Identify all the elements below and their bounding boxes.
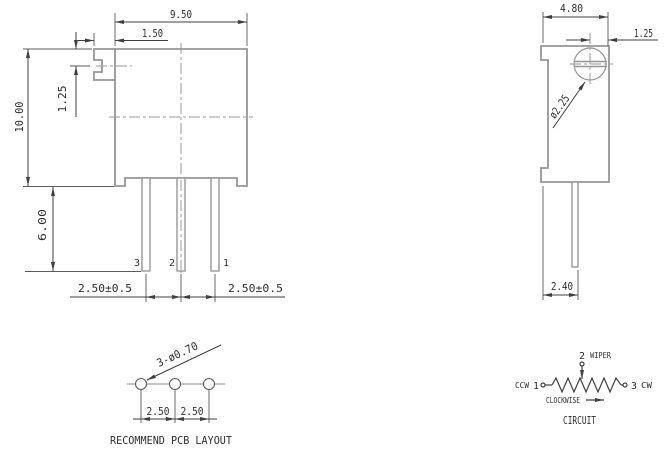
circuit-pin3-number: 3 <box>631 381 637 392</box>
dim-screw-tab-label: 1.50 <box>142 27 163 40</box>
circuit-wiper-label: WIPER <box>590 351 611 360</box>
pcb-layout: 3-ø0.70 2.50 2.50 RECOMMEND PCB LAYOUT <box>110 339 232 447</box>
dim-pin-offset-label: 2.40 <box>551 280 573 293</box>
front-pin-3 <box>142 178 150 271</box>
dim-pin-length-label: 6.00 <box>36 209 49 241</box>
pcb-hole-2 <box>170 379 181 390</box>
dim-pin-pitch-left-label: 2.50±0.5 <box>78 282 132 295</box>
dim-body-height-label: 10.00 <box>13 102 26 133</box>
ccw-terminal-dot <box>541 383 545 387</box>
pcb-layout-title: RECOMMEND PCB LAYOUT <box>110 434 232 447</box>
pcb-hole-3 <box>136 379 147 390</box>
pin-3-label: 3 <box>134 258 140 269</box>
front-pin-1 <box>211 178 219 271</box>
circuit-pin1-number: 1 <box>533 381 539 392</box>
dim-screw-inset-label: 1.25 <box>634 27 653 40</box>
technical-drawing-page: 3 2 1 9.50 1.50 10.00 1.25 6.00 <box>0 0 672 450</box>
circuit-wiper-number: 2 <box>579 351 585 362</box>
clockwise-label: CLOCKWISE <box>546 396 580 405</box>
dim-screw-diameter-label: ø2.25 <box>547 92 573 121</box>
circuit-cw-label: CW <box>641 381 653 390</box>
cw-terminal-dot <box>623 383 627 387</box>
pin-2-label: 2 <box>169 258 175 269</box>
dim-pin-pitch-right-label: 2.50±0.5 <box>228 282 283 295</box>
circuit-diagram: 2 WIPER CCW 1 3 CW CLOCKWISE CIRCUIT <box>515 351 653 427</box>
front-view: 3 2 1 9.50 1.50 10.00 1.25 6.00 <box>13 8 285 302</box>
pin-1-label: 1 <box>223 258 229 269</box>
resistor-element <box>552 378 621 392</box>
side-view: 4.80 1.25 ø2.25 2.40 <box>541 2 658 300</box>
dim-slot-offset-label: 1.25 <box>56 86 69 113</box>
screw-tab-outline <box>94 49 115 80</box>
side-pin <box>572 182 578 267</box>
trimmer-potentiometer-drawing: 3 2 1 9.50 1.50 10.00 1.25 6.00 <box>0 0 672 450</box>
dim-hole-pitch-1-label: 2.50 <box>147 405 170 418</box>
circuit-ccw-label: CCW <box>515 381 530 390</box>
pcb-hole-1 <box>204 379 215 390</box>
wiper-terminal-dot <box>580 362 584 366</box>
circuit-title: CIRCUIT <box>563 414 596 427</box>
dim-body-depth-label: 4.80 <box>560 2 583 15</box>
dim-hole-pitch-2-label: 2.50 <box>181 405 204 418</box>
dim-body-width-label: 9.50 <box>170 8 192 21</box>
